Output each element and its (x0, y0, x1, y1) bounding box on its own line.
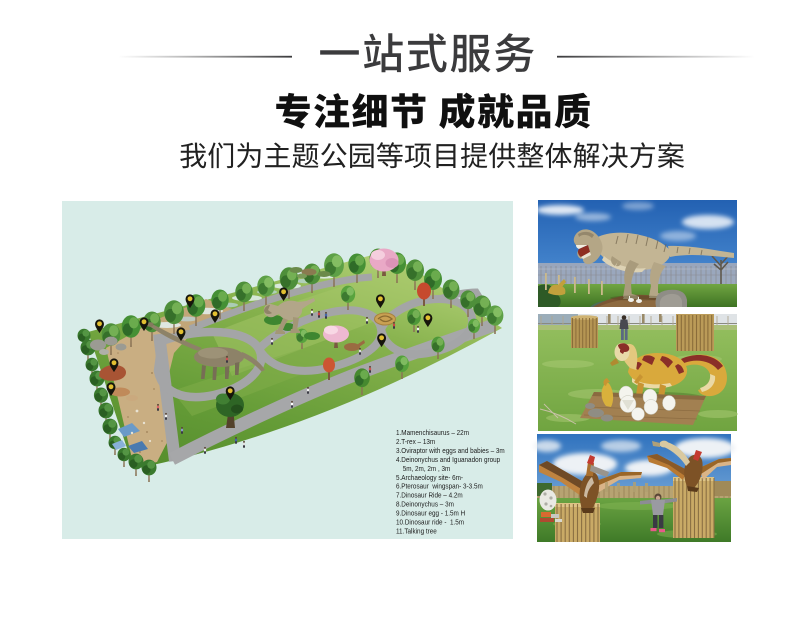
svg-text:6.Pterosaur wingspan- 3-3.5m: 6.Pterosaur wingspan- 3-3.5m (396, 483, 483, 491)
svg-text:4.Deinonychus and Iguanadon gr: 4.Deinonychus and Iguanadon group (396, 456, 500, 464)
svg-text:2.T-rex – 13m: 2.T-rex – 13m (396, 438, 435, 446)
svg-text:5.Archaeology site- 6m-: 5.Archaeology site- 6m- (396, 474, 464, 482)
svg-text:3.Oviraptor with eggs and babi: 3.Oviraptor with eggs and babies – 3m (396, 447, 505, 455)
svg-text:5m, 2m, 2m , 3m: 5m, 2m, 2m , 3m (403, 465, 451, 473)
svg-text:8.Deinonychus – 3m: 8.Deinonychus – 3m (396, 501, 454, 509)
svg-text:9.Dinosaur egg - 1.5m H: 9.Dinosaur egg - 1.5m H (396, 510, 465, 518)
svg-text:11.Talking tree: 11.Talking tree (396, 527, 437, 535)
svg-text:7.Dinosaur Ride – 4.2m: 7.Dinosaur Ride – 4.2m (396, 492, 463, 500)
svg-text:10.Dinosaur ride - 1.5m: 10.Dinosaur ride - 1.5m (396, 519, 464, 527)
svg-text:1.Mamenchisaurus – 22m: 1.Mamenchisaurus – 22m (396, 429, 469, 437)
